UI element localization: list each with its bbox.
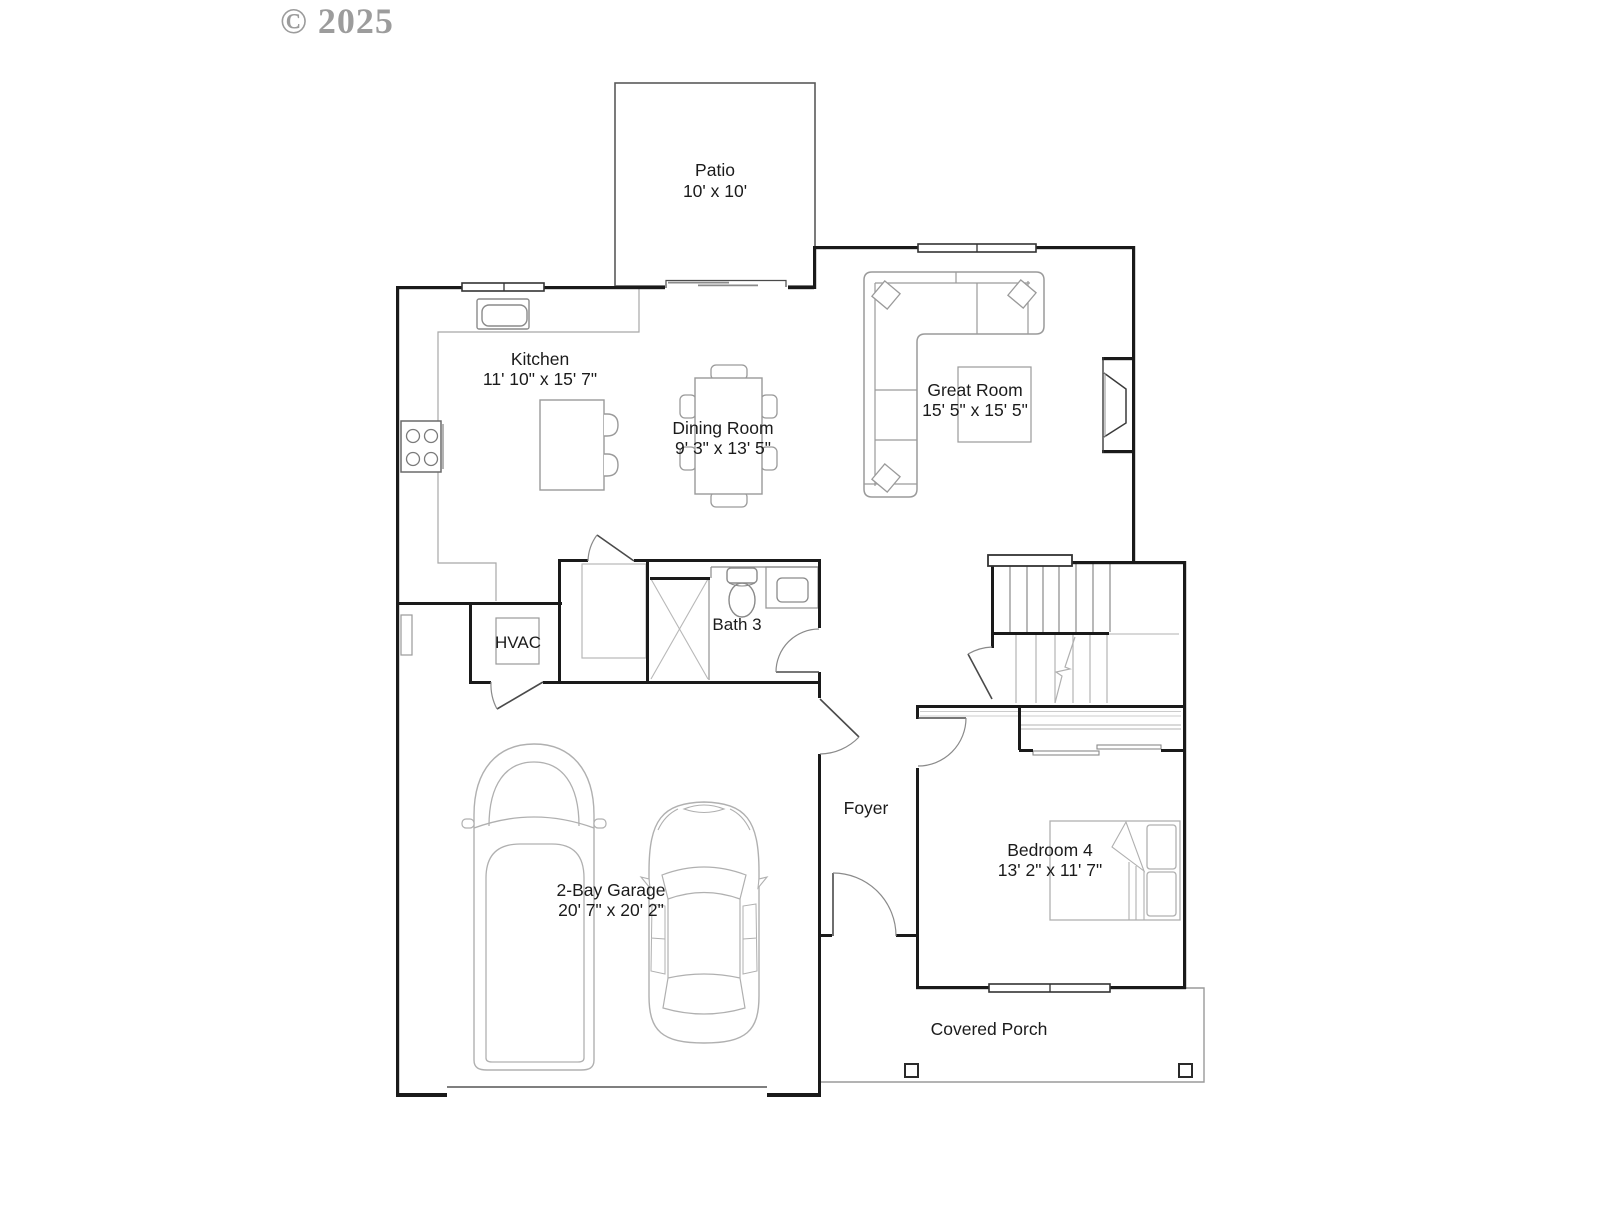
svg-text:Dining Room: Dining Room — [672, 418, 773, 438]
svg-text:Great Room: Great Room — [927, 380, 1022, 400]
svg-text:Foyer: Foyer — [844, 798, 889, 818]
svg-text:Bedroom 4: Bedroom 4 — [1007, 840, 1093, 860]
svg-text:13' 2" x 11' 7": 13' 2" x 11' 7" — [998, 860, 1102, 880]
svg-text:HVAC: HVAC — [495, 633, 541, 652]
svg-text:11' 10" x 15' 7": 11' 10" x 15' 7" — [483, 369, 597, 389]
svg-text:10' x 10': 10' x 10' — [683, 181, 747, 201]
svg-text:20' 7" x 20' 2": 20' 7" x 20' 2" — [558, 900, 664, 920]
svg-text:Covered Porch: Covered Porch — [931, 1019, 1048, 1039]
svg-text:9' 3" x 13' 5": 9' 3" x 13' 5" — [675, 438, 771, 458]
svg-text:Kitchen: Kitchen — [511, 349, 569, 369]
svg-text:Bath 3: Bath 3 — [712, 615, 761, 634]
svg-text:2-Bay Garage: 2-Bay Garage — [557, 880, 666, 900]
svg-text:15' 5" x 15' 5": 15' 5" x 15' 5" — [922, 400, 1028, 420]
svg-text:Patio: Patio — [695, 160, 735, 180]
svg-text:© 2025: © 2025 — [280, 1, 394, 41]
